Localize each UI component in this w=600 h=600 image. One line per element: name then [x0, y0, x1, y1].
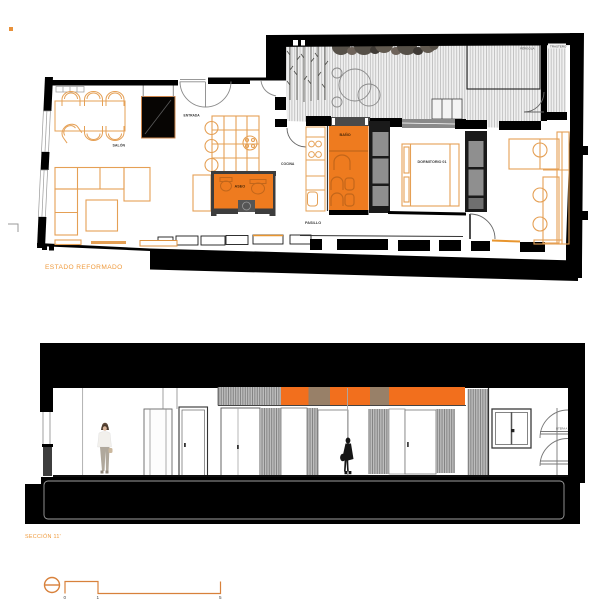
svg-text:COCINA: COCINA: [281, 162, 295, 166]
svg-text:ASEO: ASEO: [235, 185, 246, 189]
svg-text:SALÓN: SALÓN: [113, 143, 126, 148]
svg-text:1: 1: [97, 595, 100, 600]
svg-text:ESTADO REFORMADO: ESTADO REFORMADO: [45, 264, 123, 271]
svg-text:LITERA A: LITERA A: [556, 427, 568, 431]
svg-text:PASILLO: PASILLO: [305, 221, 321, 225]
svg-text:5: 5: [219, 595, 222, 600]
svg-text:ENTRADA: ENTRADA: [184, 114, 201, 118]
svg-text:DORMITORIO 01: DORMITORIO 01: [418, 160, 447, 164]
svg-text:BAÑO: BAÑO: [340, 132, 351, 137]
svg-text:TRASTERO: TRASTERO: [550, 45, 567, 49]
svg-text:0: 0: [64, 595, 67, 600]
svg-text:SECCIÓN 11': SECCIÓN 11': [25, 533, 61, 540]
svg-text:PÉRGOLA: PÉRGOLA: [520, 46, 535, 51]
